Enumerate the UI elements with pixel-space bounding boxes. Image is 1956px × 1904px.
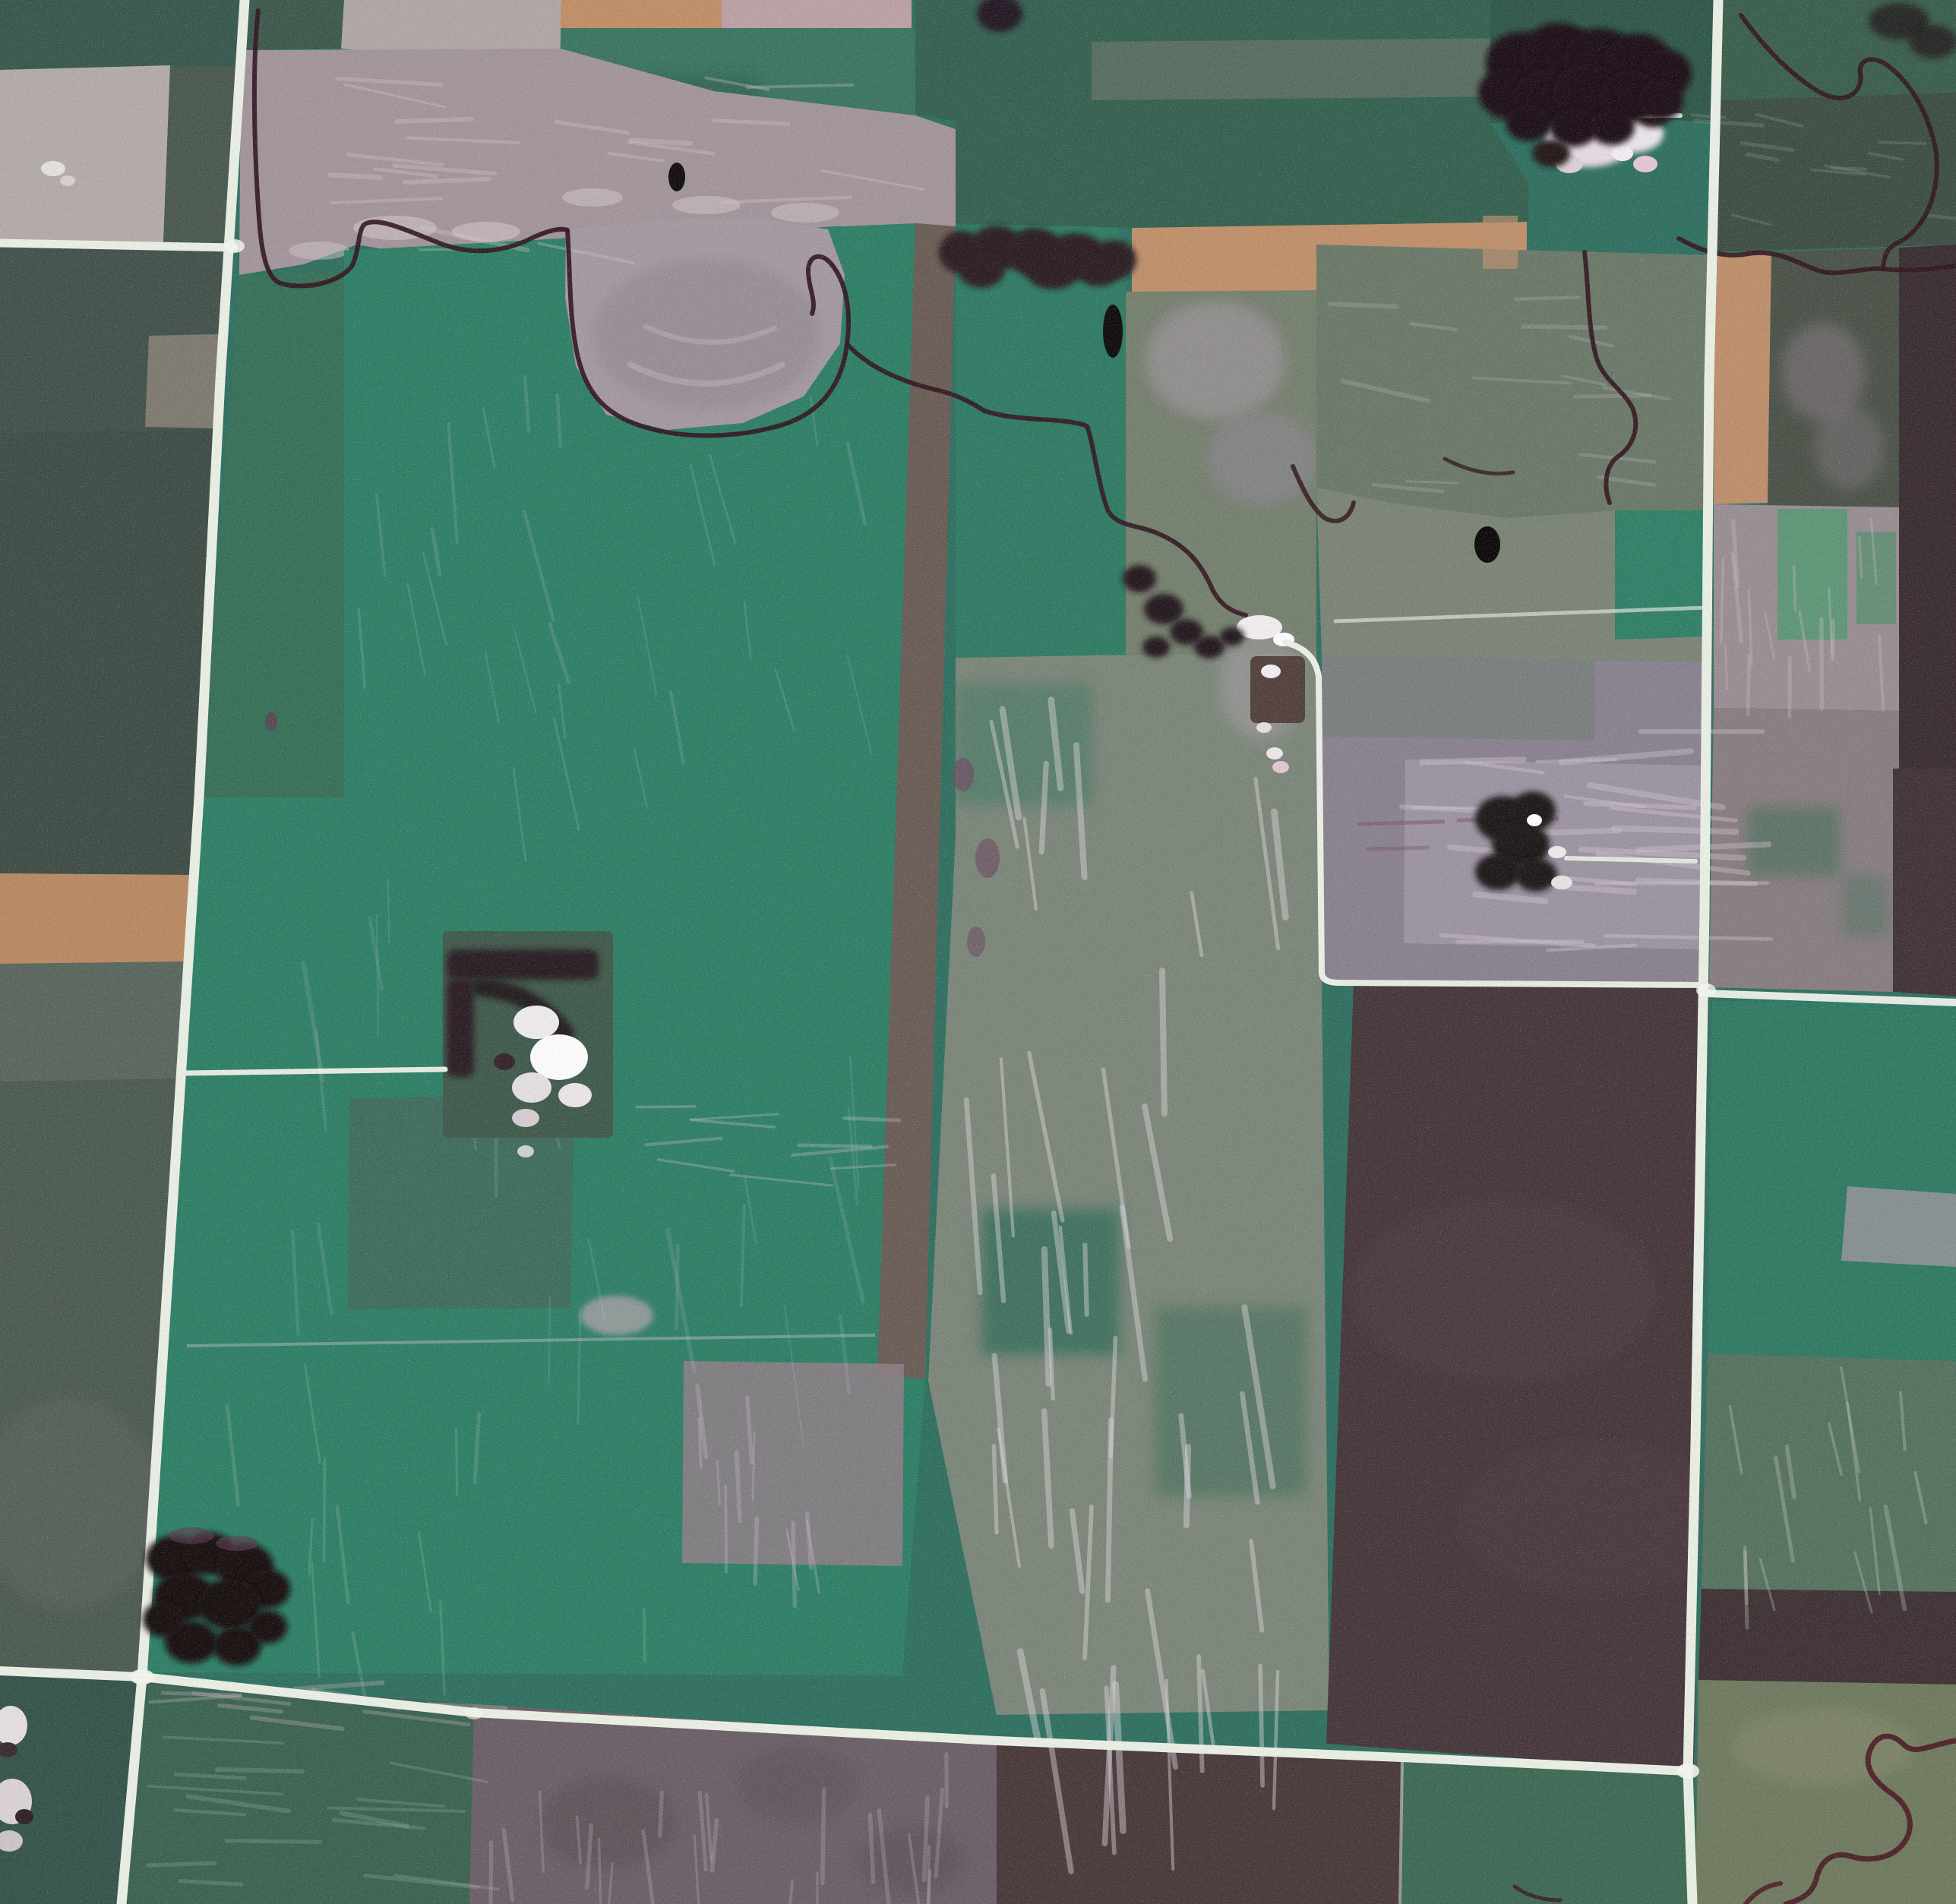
aerial-photo-stage — [0, 0, 1956, 1904]
aerial-photo — [0, 0, 1956, 1904]
film-grain-dark — [0, 0, 1956, 1904]
